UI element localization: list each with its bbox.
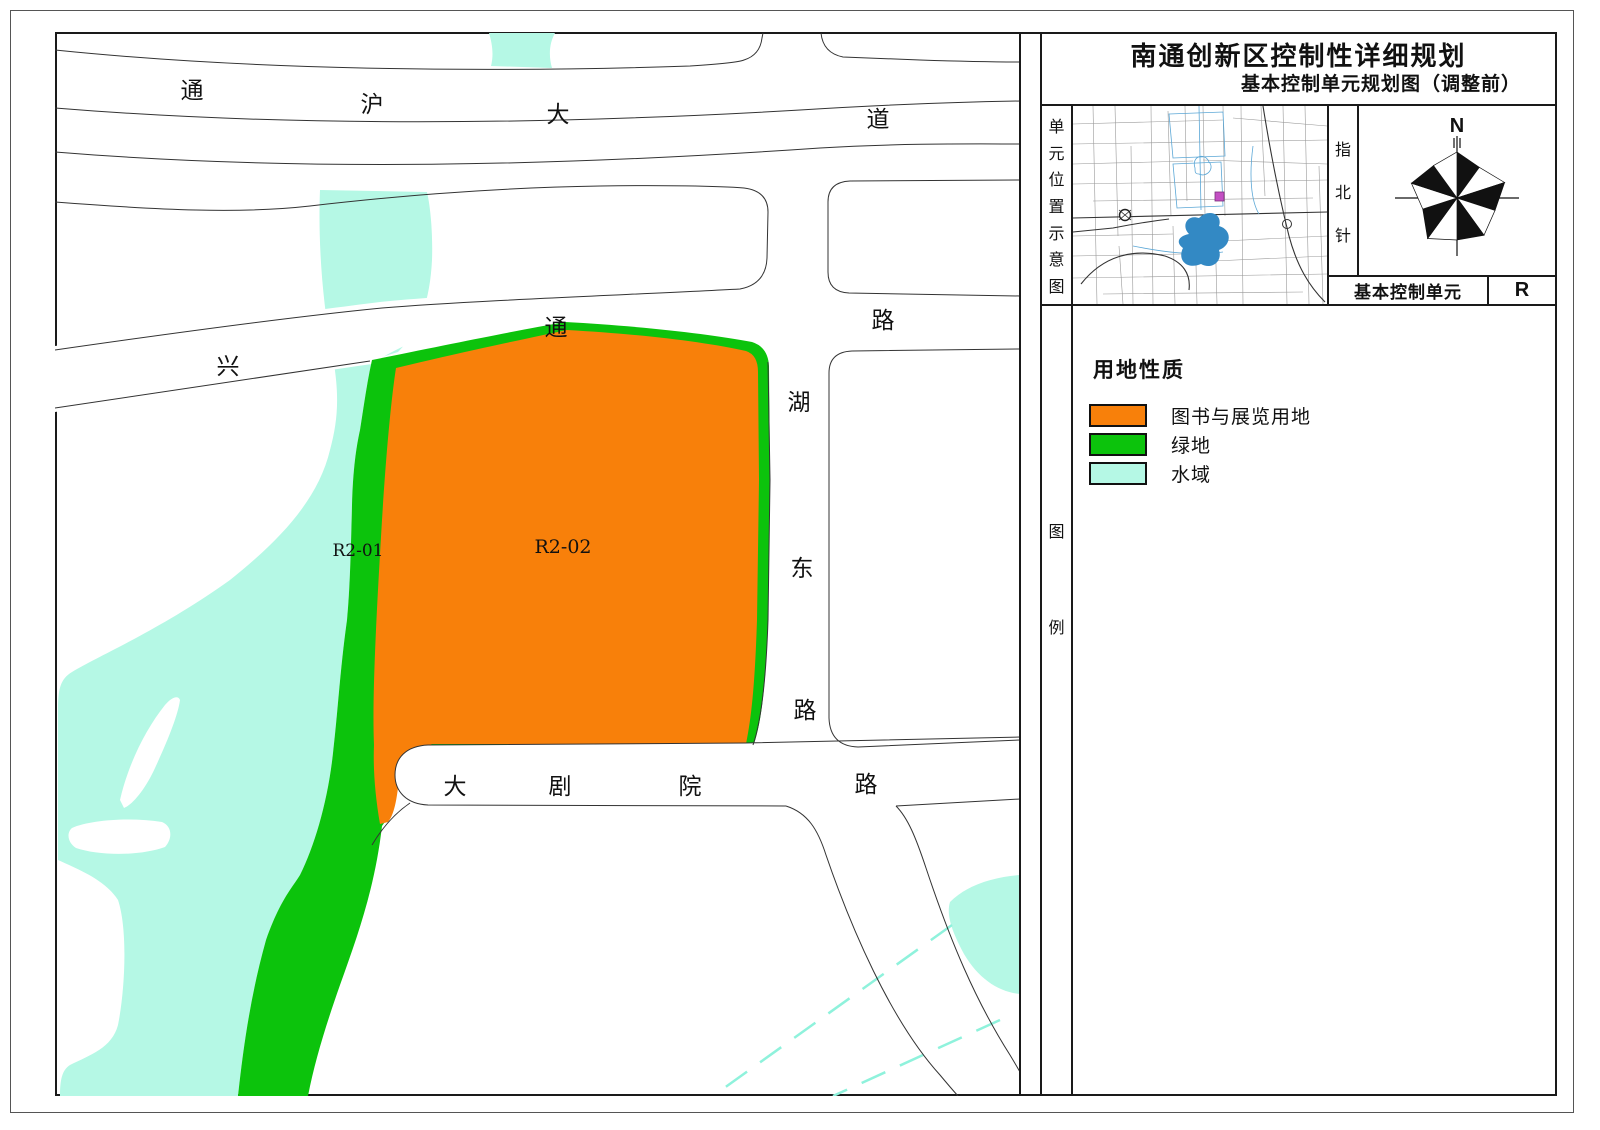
legend-label: 水域 (1171, 460, 1211, 487)
legend-label: 绿地 (1171, 431, 1211, 458)
page-title: 南通创新区控制性详细规划 (1042, 40, 1555, 72)
planning-map: 通 沪 大 道 兴 通 路 湖 东 路 大 剧 院 路 R2-01 R2-02 (55, 32, 1020, 1096)
road-label-char: 湖 (788, 389, 811, 415)
legend-heading: 用地性质 (1093, 354, 1555, 384)
compass-north-label: N (1450, 115, 1464, 137)
strip-char: 位 (1048, 166, 1064, 190)
location-inset-map (1071, 104, 1329, 306)
legend-box: 用地性质 图书与展览用地 绿地 水域 (1071, 304, 1557, 1096)
legend-label: 图书与展览用地 (1171, 402, 1311, 429)
strip-char: 意 (1048, 246, 1064, 270)
location-strip-label: 单 元 位 置 示 意 图 (1040, 104, 1073, 306)
strip-char: 单 (1048, 113, 1064, 137)
strip-char: 例 (1042, 614, 1071, 638)
strip-char: 北 (1335, 179, 1351, 203)
strip-char: 图 (1042, 518, 1071, 542)
unit-code-row: 基本控制单元 R (1327, 275, 1557, 306)
strip-char: 指 (1335, 136, 1351, 160)
road-label-char: 路 (872, 307, 895, 333)
strip-char: 置 (1048, 193, 1064, 217)
road-label-char: 大 (444, 773, 467, 799)
strip-char: 图 (1048, 273, 1064, 297)
road-label-char: 路 (855, 771, 878, 797)
strip-char: 示 (1048, 220, 1064, 244)
road-band-dajuyuan (395, 737, 1020, 806)
page-subtitle: 基本控制单元规划图（调整前） (1042, 72, 1555, 98)
title-block: 南通创新区控制性详细规划 基本控制单元规划图（调整前） (1040, 32, 1557, 106)
parcel-label-r2-01: R2-01 (333, 541, 384, 561)
water-patch-north (489, 33, 555, 68)
road-label-char: 剧 (549, 773, 572, 799)
compass-rose-icon: N (1359, 106, 1555, 275)
legend-swatch-water (1089, 462, 1147, 485)
legend-item-library: 图书与展览用地 (1089, 404, 1555, 427)
parcel-label-r2-02: R2-02 (535, 536, 592, 558)
legend-swatch-library (1089, 404, 1147, 427)
road-label-char: 通 (181, 77, 204, 103)
water-patch-southeast (949, 875, 1020, 994)
inset-map-graphic (1073, 106, 1327, 304)
road-label-char: 道 (867, 106, 890, 132)
road-label-char: 院 (679, 773, 702, 799)
legend-strip-label: 图 例 (1040, 304, 1073, 1096)
road-label-char: 路 (794, 697, 817, 723)
unit-code-value: R (1487, 277, 1555, 304)
road-label-char: 沪 (361, 91, 384, 117)
north-arrow-strip-label: 指 北 针 (1327, 104, 1359, 277)
road-label-char: 兴 (217, 353, 240, 379)
legend-item-green: 绿地 (1089, 433, 1555, 456)
strip-char: 元 (1048, 140, 1064, 164)
strip-char: 针 (1335, 222, 1351, 246)
map-panel-divider (1019, 32, 1021, 1096)
legend-item-water: 水域 (1089, 462, 1555, 485)
unit-code-label: 基本控制单元 (1329, 277, 1487, 304)
legend-swatch-green (1089, 433, 1147, 456)
road-label-char: 大 (547, 101, 570, 127)
compass-box: N (1357, 104, 1557, 277)
road-label-char: 通 (545, 314, 568, 340)
inset-lake (1179, 213, 1229, 266)
road-label-char: 东 (791, 555, 814, 581)
inset-unit-marker (1215, 192, 1224, 201)
